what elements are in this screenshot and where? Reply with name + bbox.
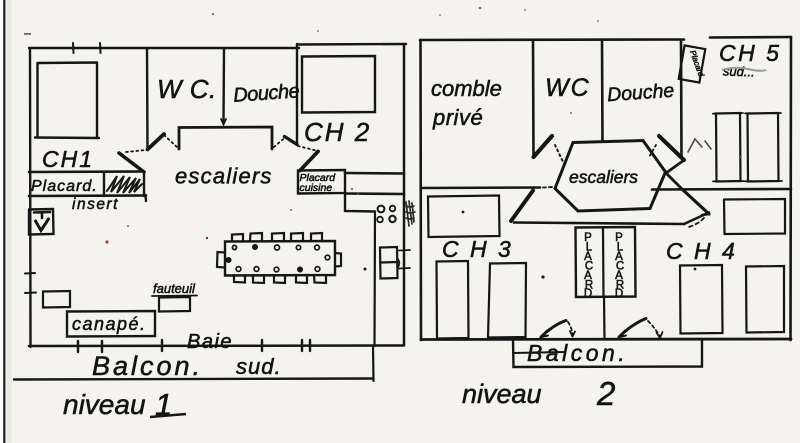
svg-text:privé: privé [432,105,483,130]
svg-text:cuisine: cuisine [300,182,333,194]
svg-text:D: D [584,288,592,300]
svg-text:Placard.: Placard. [31,178,98,195]
svg-text:niveau: niveau [462,379,542,409]
svg-text:Douche: Douche [606,80,675,107]
svg-text:Baie: Baie [187,331,233,353]
svg-text:fauteuil: fauteuil [153,281,196,296]
svg-text:C H 4: C H 4 [666,238,737,264]
svg-text:canapé.: canapé. [72,314,147,334]
svg-text:Balcon.: Balcon. [92,351,203,381]
svg-text:W C.: W C. [157,74,217,104]
svg-text:2: 2 [596,375,615,412]
svg-text:insert: insert [72,196,119,213]
svg-text:escaliers: escaliers [569,167,638,187]
svg-text:CH 5: CH 5 [719,40,781,66]
svg-text:Douche: Douche [233,80,301,107]
svg-text:C H 3: C H 3 [442,236,513,262]
svg-text:sud.: sud. [236,354,282,379]
svg-text:CH 2: CH 2 [304,117,371,147]
svg-text:niveau: niveau [63,389,146,420]
svg-text:escaliers: escaliers [175,164,273,189]
svg-text:WC: WC [545,74,591,102]
svg-text:sud...: sud... [723,63,755,79]
svg-text:D: D [615,288,623,300]
svg-text:CH1: CH1 [42,146,94,172]
svg-text:comble: comble [431,76,502,101]
